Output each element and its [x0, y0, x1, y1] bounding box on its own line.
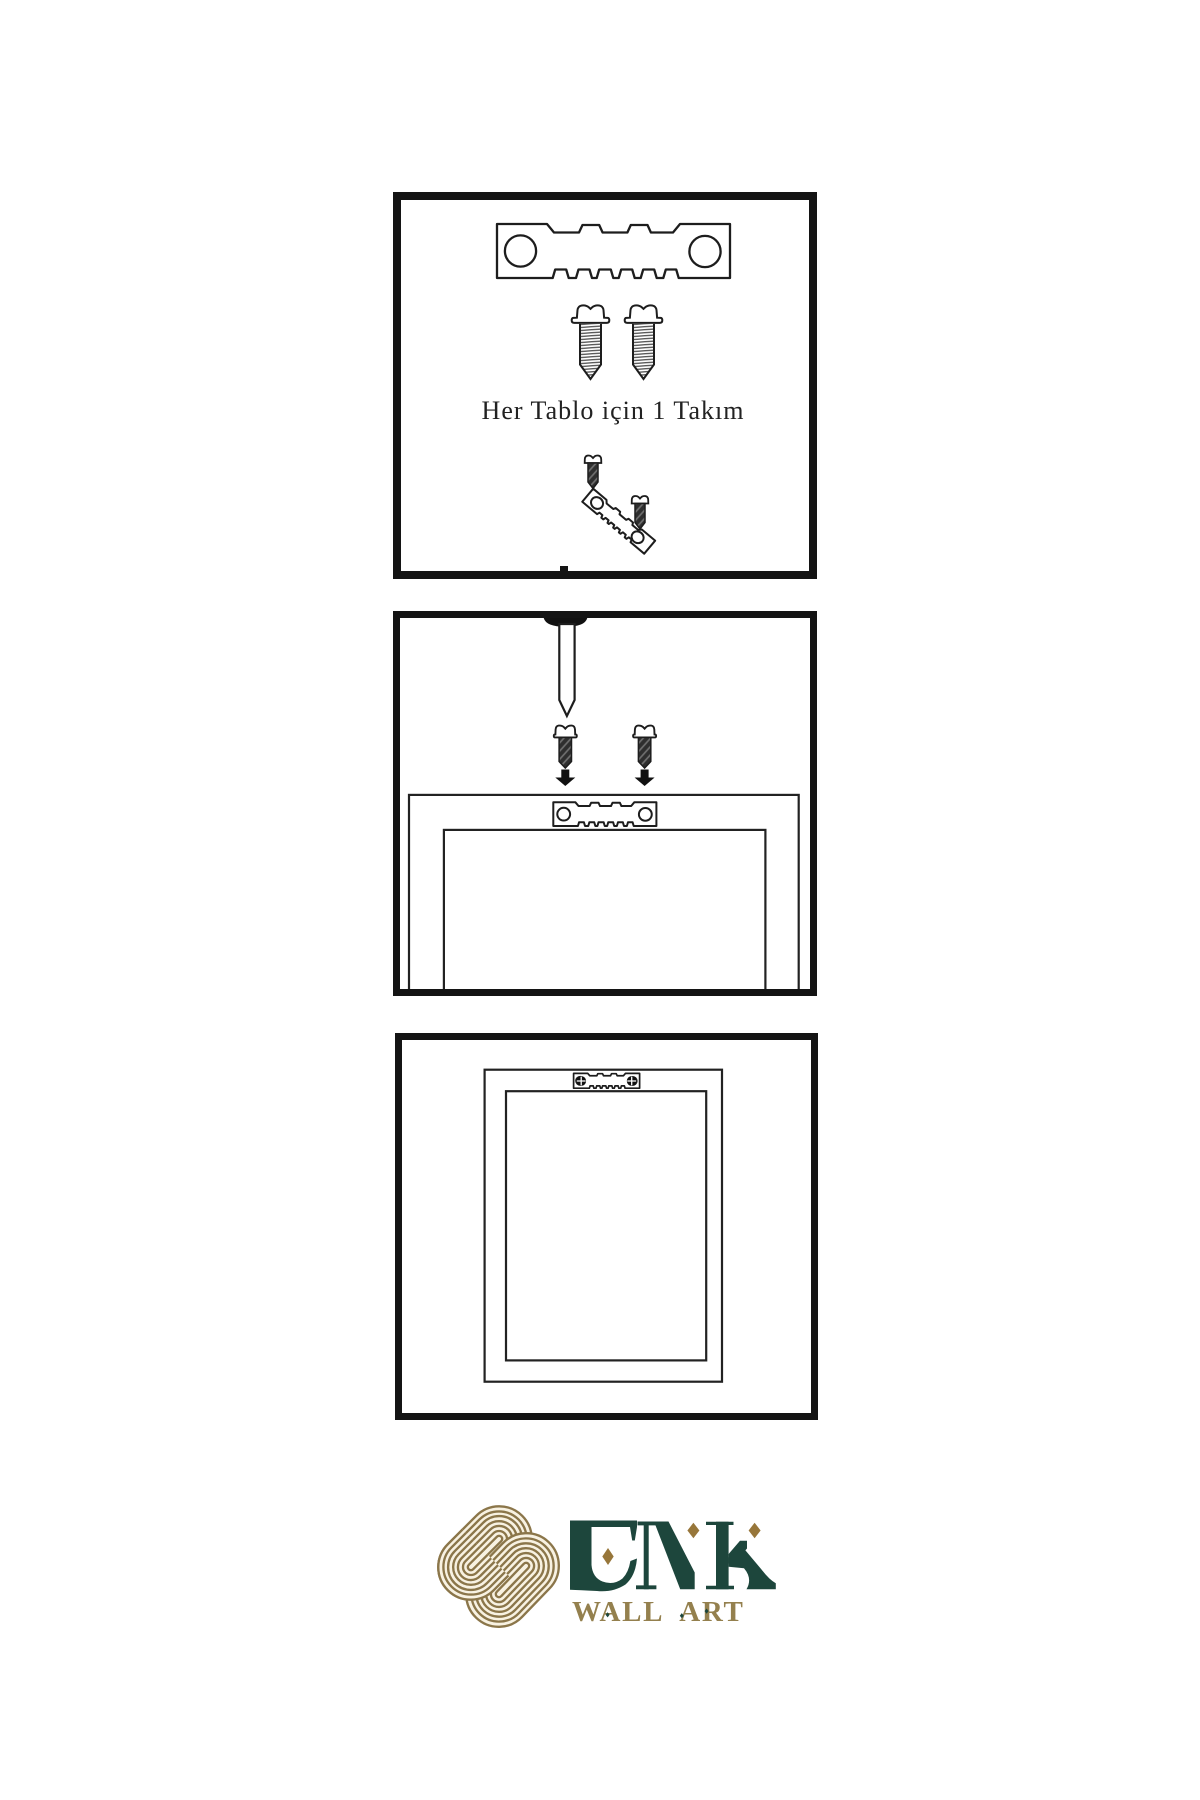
svg-text:WALL ART: WALL ART [572, 1596, 745, 1628]
